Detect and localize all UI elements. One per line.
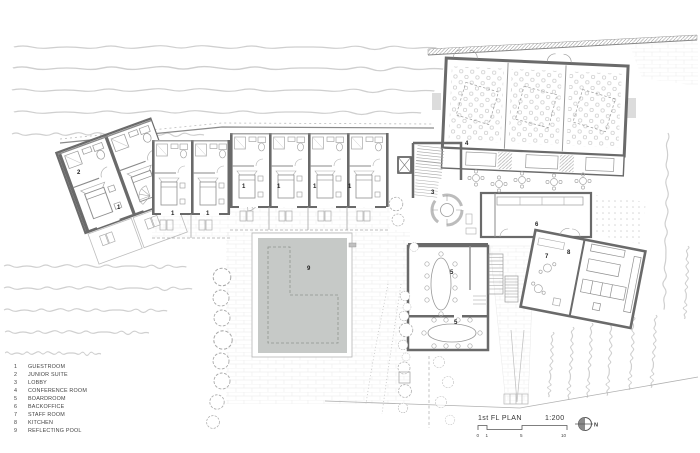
boardroom-block <box>408 243 488 350</box>
legend-item-label: KITCHEN <box>28 420 53 426</box>
legend-item-label: BACKOFFICE <box>28 404 65 410</box>
legend-item: 4 CONFERENCE ROOM <box>14 388 87 394</box>
drawing-scale: 1:200 <box>545 415 565 422</box>
legend-item: 3 LOBBY <box>14 380 47 386</box>
legend-item-number: 4 <box>14 388 17 394</box>
legend-item-number: 3 <box>14 380 17 386</box>
legend-item-number: 6 <box>14 404 17 410</box>
scale-bar-tick: 1 <box>486 433 489 438</box>
legend-item-number: 9 <box>14 428 17 434</box>
legend-item: 8 KITCHEN <box>14 420 53 426</box>
legend-item: 5 BOARDROOM <box>14 396 66 402</box>
legend-item-label: CONFERENCE ROOM <box>28 388 87 394</box>
north-arrow-icon: N <box>575 418 598 431</box>
legend-item-number: 8 <box>14 420 17 426</box>
legend-item-label: BOARDROOM <box>28 396 66 402</box>
legend-item-label: GUESTROOM <box>28 364 65 370</box>
scale-bar-tick: 10 <box>561 433 567 438</box>
reflecting-pool <box>252 233 356 357</box>
legend-item: 7 STAFF ROOM <box>14 412 65 418</box>
legend-item: 1 GUESTROOM <box>14 364 65 370</box>
site-plan-drawing: 2 1 1 1 1 1 1 1 3 4 5 5 6 7 8 9 1 GUESTR… <box>0 0 700 453</box>
legend-item-label: JUNIOR SUITE <box>28 372 68 378</box>
legend-item: 2 JUNIOR SUITE <box>14 372 68 378</box>
conference-room-building <box>432 49 636 176</box>
legend-item-number: 5 <box>14 396 17 402</box>
legend-item: 9 REFLECTING POOL <box>14 428 82 434</box>
legend-item-label: REFLECTING POOL <box>28 428 82 434</box>
north-label: N <box>594 423 598 429</box>
scale-bar-tick: 0 <box>477 433 480 438</box>
scale-bar: 0 1 5 10 <box>477 426 568 439</box>
architectural-floor-plan: 2 1 1 1 1 1 1 1 3 4 5 5 6 7 8 9 1 GUESTR… <box>0 0 700 453</box>
legend-item: 6 BACKOFFICE <box>14 404 65 410</box>
title-block: 1st FL PLAN 1:200 0 1 5 10 N <box>477 415 599 438</box>
scale-bar-tick: 5 <box>520 433 523 438</box>
legend-item-label: LOBBY <box>28 380 47 386</box>
legend-item-number: 1 <box>14 364 17 370</box>
legend-item-number: 2 <box>14 372 17 378</box>
legend-item-label: STAFF ROOM <box>28 412 65 418</box>
legend-item-number: 7 <box>14 412 17 418</box>
legend: 1 GUESTROOM 2 JUNIOR SUITE 3 LOBBY 4 CON… <box>14 364 87 434</box>
drawing-title: 1st FL PLAN <box>478 415 522 422</box>
